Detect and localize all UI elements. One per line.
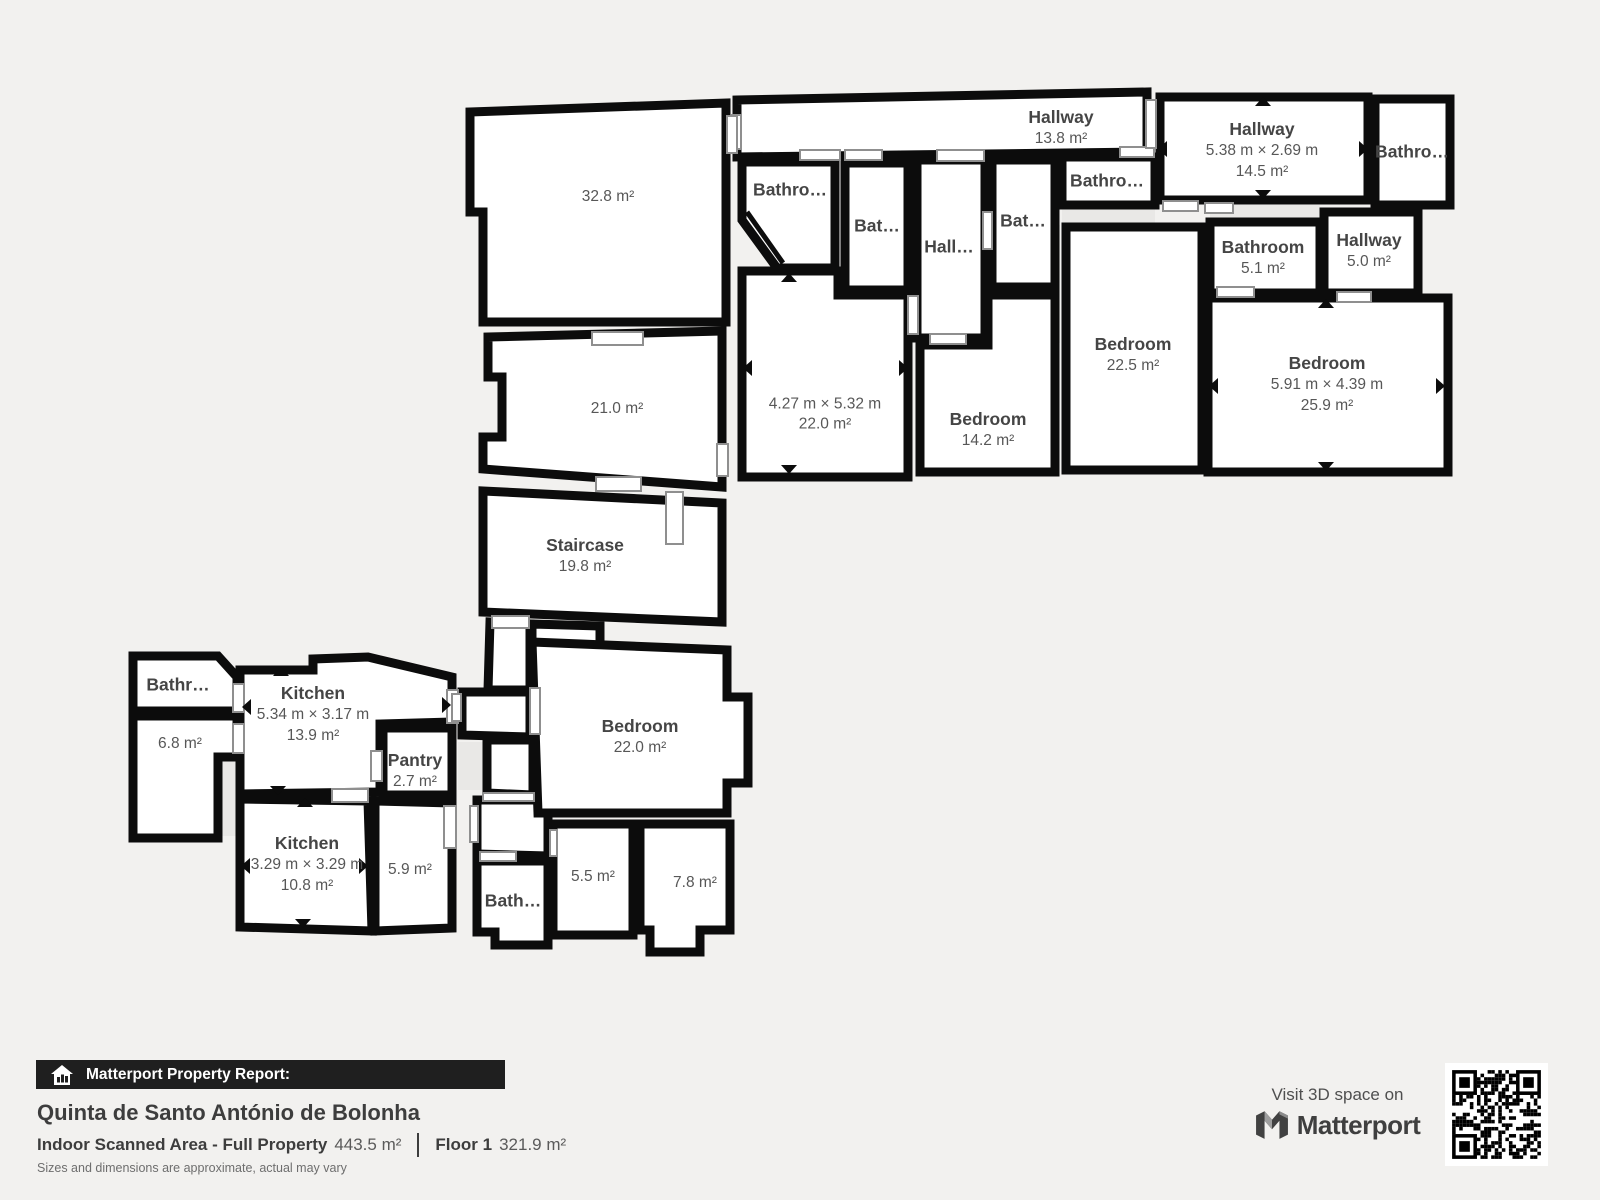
- bedroom-22-0-shape: [532, 642, 748, 813]
- property-report-house-icon: [50, 1063, 74, 1087]
- room-4-27-shape: [742, 271, 908, 477]
- scanned-area-label: Indoor Scanned Area - Full Property: [37, 1135, 327, 1155]
- matterport-promo: Visit 3D space on Matterport: [1240, 1063, 1435, 1163]
- bathroom-tr-shape: [1375, 99, 1450, 205]
- qr-code: [1445, 1063, 1548, 1166]
- pantry-shape: [383, 728, 452, 795]
- bathroom-5-1-shape: [1210, 222, 1320, 293]
- bat-2-shape: [992, 160, 1055, 287]
- property-title: Quinta de Santo António de Bolonha: [37, 1100, 420, 1126]
- room-7-8-shape: [640, 824, 730, 952]
- hall-corridor-shape: [917, 160, 985, 338]
- report-bar: Matterport Property Report:: [36, 1060, 505, 1089]
- matterport-logo-icon: [1255, 1109, 1289, 1141]
- hallway-top-shape: [737, 92, 1147, 157]
- scanned-area-value: 443.5 m²: [334, 1135, 401, 1155]
- matterport-wordmark: Matterport: [1297, 1110, 1421, 1141]
- report-bar-label: Matterport Property Report:: [86, 1066, 290, 1084]
- bat-1-shape: [845, 163, 908, 290]
- vestibule-c-shape: [462, 692, 530, 737]
- bedroom-25-9-shape: [1208, 298, 1448, 472]
- bathroom-c1-shape: [742, 162, 835, 268]
- hallway-right-shape: [1160, 97, 1368, 200]
- floor-area-value: 321.9 m²: [499, 1135, 566, 1155]
- hallway-5-0-shape: [1324, 212, 1418, 293]
- room-32-8-shape: [470, 103, 726, 322]
- area-stats: Indoor Scanned Area - Full Property 443.…: [37, 1133, 566, 1157]
- room-6-8-shape: [133, 716, 237, 838]
- visit-3d-label: Visit 3D space on: [1272, 1085, 1404, 1105]
- bathr-bl-shape: [133, 656, 237, 711]
- room-5-9-shape: [375, 801, 452, 931]
- room-21-0-shape: [483, 331, 722, 487]
- disclaimer-text: Sizes and dimensions are approximate, ac…: [37, 1161, 347, 1175]
- staircase-shape: [483, 491, 722, 622]
- stats-divider: [417, 1133, 419, 1157]
- bathroom-c2-shape: [1062, 157, 1155, 205]
- room-outlines: [133, 92, 1450, 952]
- bath-b-shape: [477, 861, 548, 945]
- floor-label: Floor 1: [435, 1135, 492, 1155]
- vestibule-a-shape: [488, 622, 530, 690]
- room-5-5-shape: [553, 824, 633, 935]
- vestibule-d-shape: [487, 740, 533, 795]
- floor-plan: [0, 0, 1600, 1200]
- bedroom-22-5-shape: [1066, 227, 1202, 470]
- kitchen-2-shape: [240, 799, 372, 931]
